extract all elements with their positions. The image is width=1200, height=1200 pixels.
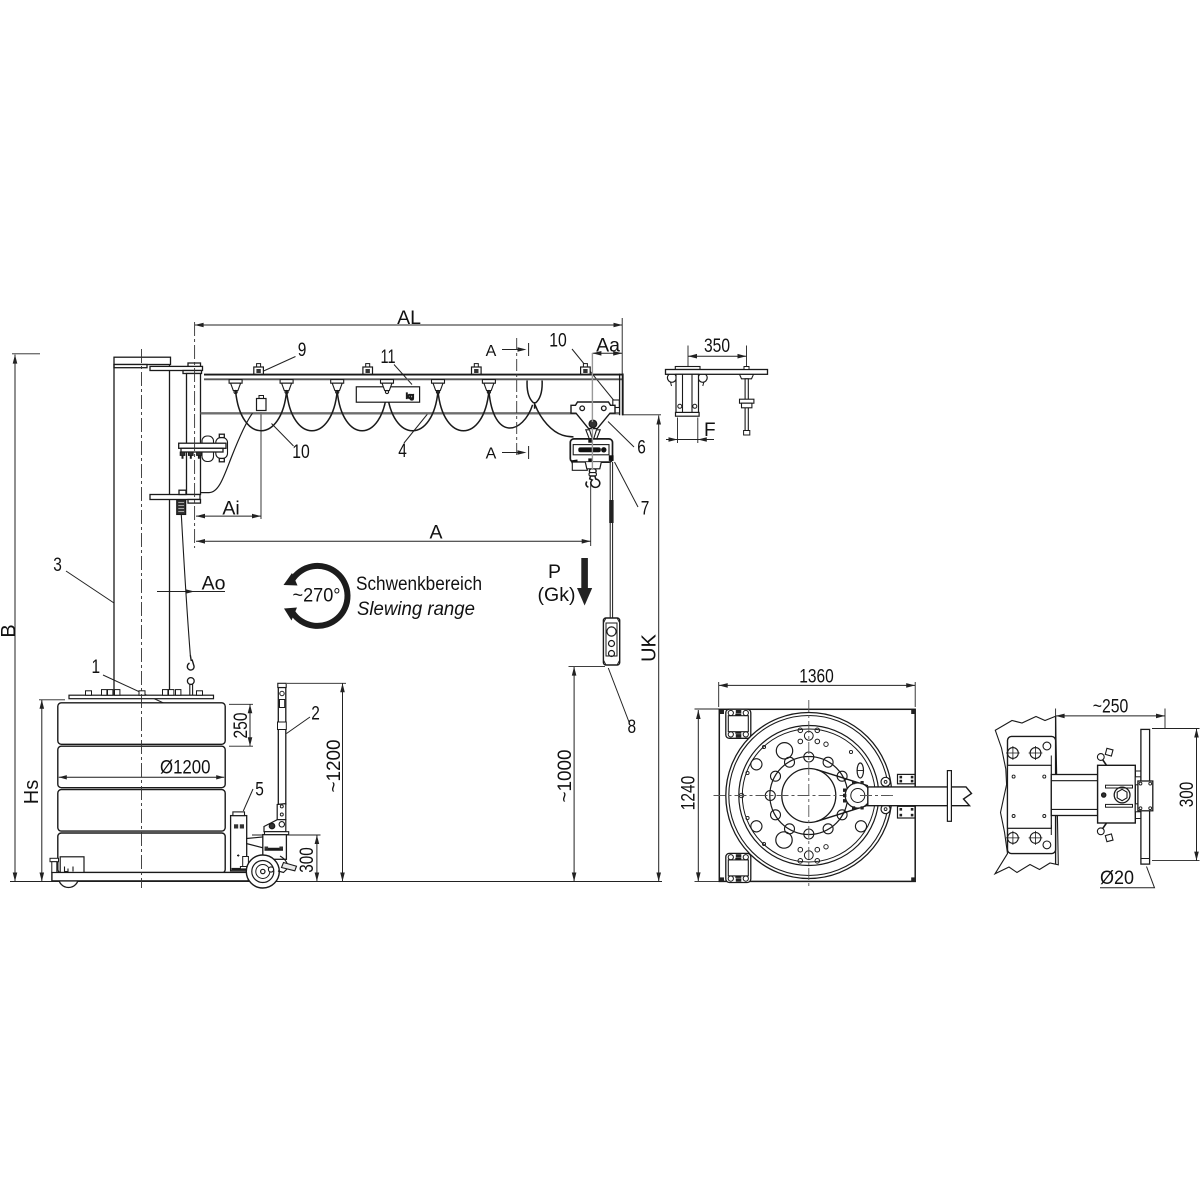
- svg-text:Ø20: Ø20: [1100, 868, 1134, 889]
- svg-text:(Gk): (Gk): [538, 584, 576, 606]
- svg-text:3: 3: [53, 555, 62, 576]
- svg-text:~1000: ~1000: [555, 750, 576, 803]
- svg-text:Ø1200: Ø1200: [160, 757, 211, 779]
- svg-text:350: 350: [704, 336, 730, 357]
- svg-text:7: 7: [641, 499, 650, 520]
- svg-text:P: P: [548, 561, 561, 583]
- svg-text:A: A: [486, 343, 497, 360]
- svg-text:A: A: [429, 522, 442, 544]
- svg-text:9: 9: [298, 340, 307, 361]
- svg-text:1360: 1360: [799, 667, 834, 688]
- svg-text:8: 8: [628, 717, 637, 738]
- svg-text:UK: UK: [639, 633, 661, 661]
- svg-text:5: 5: [255, 780, 264, 801]
- svg-text:10: 10: [292, 442, 310, 463]
- svg-text:~250: ~250: [1093, 697, 1129, 718]
- svg-text:Aa: Aa: [596, 335, 620, 357]
- svg-text:Schwenkbereich: Schwenkbereich: [356, 573, 482, 595]
- svg-text:250: 250: [231, 713, 252, 739]
- svg-text:1: 1: [92, 657, 101, 678]
- svg-text:Ai: Ai: [222, 498, 239, 520]
- svg-text:Ao: Ao: [202, 573, 226, 595]
- svg-text:300: 300: [1177, 782, 1198, 808]
- svg-text:A: A: [486, 446, 497, 463]
- svg-text:4: 4: [398, 441, 407, 462]
- svg-text:Slewing range: Slewing range: [357, 598, 475, 620]
- svg-text:B: B: [0, 624, 20, 637]
- svg-text:Hs: Hs: [21, 780, 43, 804]
- svg-text:F: F: [704, 420, 716, 441]
- svg-text:~1200: ~1200: [324, 740, 345, 793]
- svg-text:kg: kg: [406, 392, 414, 401]
- svg-text:10: 10: [549, 331, 567, 352]
- svg-text:300: 300: [297, 847, 318, 873]
- svg-text:11: 11: [381, 347, 396, 368]
- svg-text:1240: 1240: [679, 776, 700, 811]
- svg-text:AL: AL: [397, 307, 421, 329]
- svg-text:2: 2: [311, 704, 320, 725]
- svg-text:6: 6: [637, 438, 646, 459]
- svg-text:~270°: ~270°: [293, 586, 341, 607]
